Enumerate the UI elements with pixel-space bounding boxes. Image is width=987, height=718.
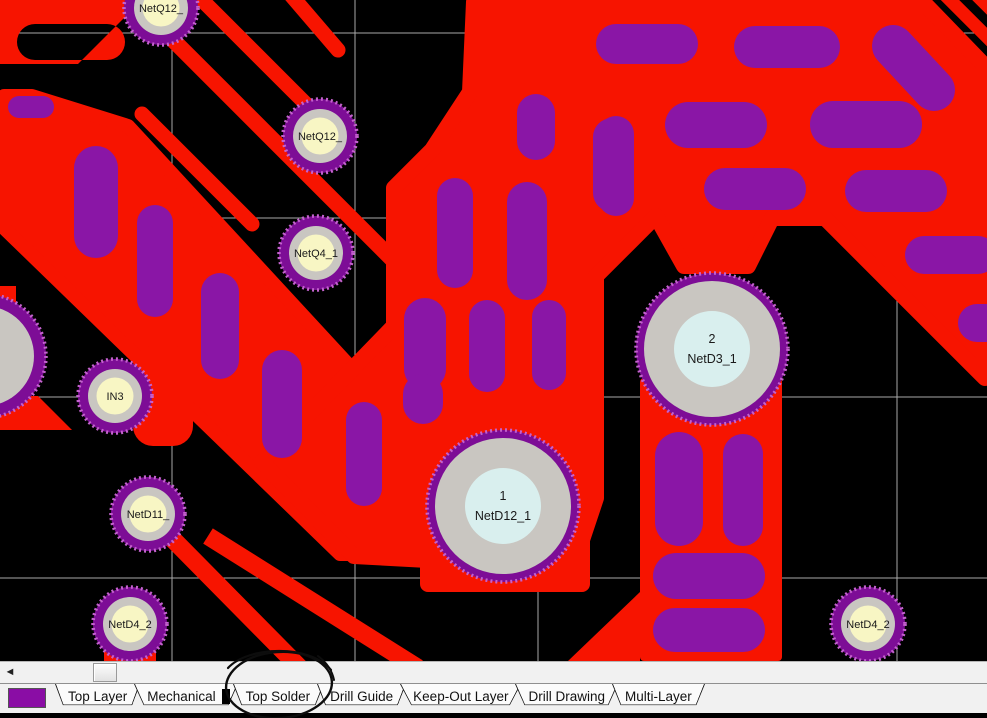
- layer-tab-label: Multi-Layer: [621, 684, 696, 709]
- pad-netq12_[interactable]: NetQ12_: [283, 99, 357, 173]
- layer-tab-bar: Top LayerMechanicalTop SolderDrill Guide…: [0, 683, 987, 713]
- layer-tab-drill-guide[interactable]: Drill Guide: [326, 684, 397, 711]
- layer-tab-label: Top Solder: [242, 684, 315, 709]
- pad-label: NetD11_: [127, 509, 170, 521]
- pad-label: NetD4_2: [108, 619, 151, 631]
- clipped-glyph: [222, 689, 230, 704]
- pad-netd4_2[interactable]: NetD4_2: [831, 587, 905, 661]
- layer-tab-label: Drill Guide: [326, 684, 397, 709]
- layer-tab-label: Mechanical: [143, 684, 219, 709]
- layer-tab-drill-drawing[interactable]: Drill Drawing: [524, 684, 609, 711]
- pad-ring: [674, 311, 750, 387]
- pad-netd12_1[interactable]: 1NetD12_1: [427, 430, 579, 582]
- layer-tab-label: Drill Drawing: [524, 684, 609, 709]
- pad-label: NetQ12_: [298, 131, 343, 143]
- pad-in3[interactable]: IN3: [78, 359, 152, 433]
- horizontal-scrollbar[interactable]: ◄: [0, 661, 987, 683]
- layer-tab-mechanical[interactable]: Mechanical: [143, 684, 229, 711]
- pad-netq4_1[interactable]: NetQ4_1: [279, 216, 353, 290]
- pad-label: NetQ12_: [139, 3, 184, 15]
- pad-label: NetD12_1: [475, 509, 531, 523]
- layer-tab-top-solder[interactable]: Top Solder: [242, 684, 315, 711]
- pad-ring: [465, 468, 541, 544]
- layer-tab-multi-layer[interactable]: Multi-Layer: [621, 684, 696, 711]
- layer-tab-label: Keep-Out Layer: [409, 684, 512, 709]
- pad-label: NetD4_2: [846, 619, 889, 631]
- layer-tab-label: Top Layer: [64, 684, 131, 709]
- pad-netd11_[interactable]: NetD11_: [111, 477, 185, 551]
- layer-color-swatch[interactable]: [8, 688, 46, 708]
- pad-label: 1: [500, 489, 507, 503]
- pad-netd4_2[interactable]: NetD4_2: [93, 587, 167, 661]
- scroll-left-arrow-icon[interactable]: ◄: [2, 664, 18, 680]
- pad-label: NetD3_1: [687, 352, 736, 366]
- pad-label: 2: [709, 332, 716, 346]
- pad-label: IN3: [106, 391, 123, 403]
- layer-tab-top-layer[interactable]: Top Layer: [64, 684, 131, 711]
- pad-netd3_1[interactable]: 2NetD3_1: [636, 273, 788, 425]
- pcb-canvas[interactable]: NetQ12_NetQ12_NetQ4_1IN3NetD11_NetD4_2Ne…: [0, 0, 987, 661]
- layer-tab-keep-out-layer[interactable]: Keep-Out Layer: [409, 684, 512, 711]
- pad-label: NetQ4_1: [294, 248, 338, 260]
- scrollbar-thumb[interactable]: [93, 663, 117, 682]
